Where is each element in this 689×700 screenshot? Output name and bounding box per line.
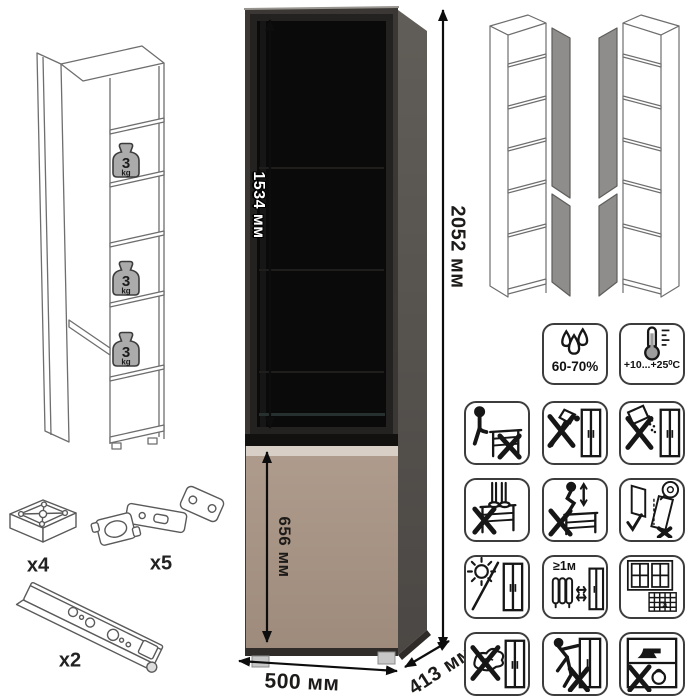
- product-spec-sheet: 3 kg 3 kg 3 kg: [0, 0, 689, 700]
- wireframe-cabinet-mirrored: [599, 15, 679, 297]
- do-not-drag-icon: [542, 632, 608, 696]
- heater-distance-label: ≥1м: [553, 559, 576, 573]
- rail-drawing: [16, 580, 167, 674]
- lower-door: [246, 456, 398, 648]
- glass-door: [257, 21, 386, 427]
- hardware-parts: [2, 478, 232, 693]
- keep-1m-from-heater-icon: ≥1м: [542, 555, 608, 619]
- lower-door-height-label: 656 мм: [274, 516, 294, 577]
- humidity-value: 60-70%: [552, 360, 599, 374]
- cabinet-render: [230, 0, 480, 700]
- lower-door-panel: [552, 194, 570, 296]
- no-heavy-objects-icon: [619, 632, 685, 696]
- do-not-jump-icon: [542, 478, 608, 542]
- cabinet-base: [245, 648, 398, 656]
- foot-count-label: x4: [27, 555, 49, 578]
- humidity-icon: 60-70%: [542, 323, 608, 385]
- cabinet-top-face: [61, 46, 164, 81]
- adjustable-foot-drawing: [10, 500, 76, 542]
- no-wet-cleaning-icon: [464, 632, 530, 696]
- shelf-load-badge: 3 kg: [111, 330, 141, 368]
- section-divider: [69, 320, 110, 355]
- temperature-value: +10...+25⁰C: [624, 360, 680, 371]
- open-door-panel: [37, 53, 69, 442]
- shelf-load-unit: kg: [121, 169, 130, 178]
- rail-count-label: x2: [59, 650, 81, 673]
- shelf-load-unit: kg: [121, 287, 130, 296]
- hinge-count-label: x5: [150, 553, 172, 576]
- upper-door-panel: [552, 28, 570, 198]
- wireframe-open-cabinet: [12, 32, 217, 467]
- temperature-icon: +10...+25⁰C: [619, 323, 685, 385]
- shelf-load-badge: 3 kg: [111, 141, 141, 179]
- do-not-stand-icon: [464, 478, 530, 542]
- width-label: 500 мм: [264, 669, 340, 696]
- cabinet-side-panel: [398, 10, 427, 655]
- total-height-label: 2052 мм: [446, 205, 469, 288]
- no-sharp-tools-icon: [542, 401, 608, 465]
- lower-door-highlight: [246, 446, 398, 456]
- shelf-load-badge: 3 kg: [111, 259, 141, 297]
- glass-door-height-label: 1534 мм: [249, 171, 267, 238]
- ventilate-room-icon: 21: [619, 555, 685, 619]
- no-abrasive-cleaners-icon: [619, 401, 685, 465]
- cabinet-foot: [378, 652, 395, 664]
- door-gap: [245, 434, 398, 446]
- avoid-direct-sunlight-icon: [464, 555, 530, 619]
- wireframe-door-orientation-pair: [482, 6, 687, 318]
- door-adjustment-icon: [619, 478, 685, 542]
- anvil-glyph: [638, 649, 661, 659]
- do-not-sit-icon: [464, 401, 530, 465]
- kettlebell-glyph: [652, 670, 665, 684]
- calendar-day: 21: [662, 603, 667, 608]
- shelf-load-unit: kg: [121, 358, 130, 367]
- hinge-drawing: [90, 485, 225, 547]
